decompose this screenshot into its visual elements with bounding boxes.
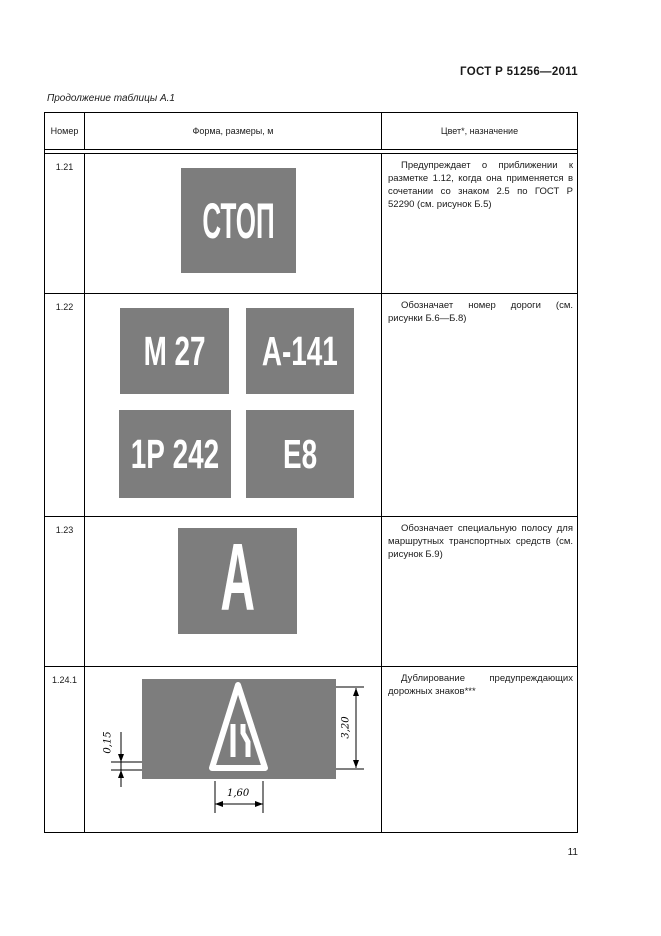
stop-marking-sign: СТОП (181, 168, 296, 273)
row-number: 1.21 (45, 154, 85, 293)
page-number: 11 (568, 847, 578, 858)
row-number: 1.24.1 (45, 667, 85, 832)
arrow-up-icon (353, 688, 359, 696)
route-number-sign-a141: А-141 (246, 308, 354, 394)
column-header-color: Цвет*, назначение (382, 113, 577, 149)
sign-label: М 27 (144, 331, 206, 372)
arrow-up-icon (118, 770, 124, 778)
arrow-down-icon (353, 760, 359, 768)
document-number: ГОСТ Р 51256—2011 (460, 66, 578, 78)
row-number: 1.23 (45, 517, 85, 666)
column-header-shape: Форма, размеры, м (85, 113, 382, 149)
sign-label: Е8 (283, 434, 317, 475)
table-row-1-23: 1.23 А Обозначает специальную полосу для… (45, 517, 577, 667)
dim-label-height: 3,20 (341, 716, 352, 738)
markings-table: Номер Форма, размеры, м Цвет*, назначени… (44, 112, 578, 833)
description-cell: Обозначает номер дороги (см. рисунки Б.6… (382, 294, 577, 516)
sign-label: 1Р 242 (131, 434, 219, 475)
dim-label-width: 1,60 (227, 788, 249, 799)
column-header-number: Номер (45, 113, 85, 149)
road-narrows-sign-drawing (85, 667, 381, 831)
table-caption: Продолжение таблицы А.1 (47, 93, 175, 104)
row-number: 1.22 (45, 294, 85, 516)
route-number-sign-1r242: 1Р 242 (119, 410, 231, 498)
document-page: ГОСТ Р 51256—2011 Продолжение таблицы А.… (0, 0, 661, 936)
table-row-1-22: 1.22 М 27 А-141 1Р 242 Е8 Обозначает ном… (45, 294, 577, 517)
dim-lines-offset (111, 732, 142, 787)
sign-label: А (220, 530, 255, 632)
arrow-left-icon (215, 801, 223, 807)
table-header-row: Номер Форма, размеры, м Цвет*, назначени… (45, 113, 577, 150)
description-text: Предупреждает о приближении к разметке 1… (382, 154, 577, 211)
shape-cell: А (85, 517, 382, 666)
shape-cell: М 27 А-141 1Р 242 Е8 (85, 294, 382, 516)
bus-lane-marking-sign: А (178, 528, 297, 634)
description-text: Обозначает номер дороги (см. рисунки Б.6… (382, 294, 577, 325)
route-number-sign-m27: М 27 (120, 308, 229, 394)
shape-cell: 0,15 3,20 1,60 (85, 667, 382, 832)
table-row-1-24-1: 1.24.1 (45, 667, 577, 832)
description-cell: Предупреждает о приближении к разметке 1… (382, 154, 577, 293)
sign-label: СТОП (202, 196, 274, 246)
description-cell: Дублирование предупреждающих дорожных зн… (382, 667, 577, 832)
sign-label: А-141 (262, 331, 338, 372)
description-text: Обозначает специальную полосу для маршру… (382, 517, 577, 561)
table-row-1-21: 1.21 СТОП Предупреждает о приближении к … (45, 154, 577, 294)
arrow-down-icon (118, 754, 124, 762)
shape-cell: СТОП (85, 154, 382, 293)
route-number-sign-e8: Е8 (246, 410, 354, 498)
dim-label-offset: 0,15 (103, 731, 114, 753)
description-text: Дублирование предупреждающих дорожных зн… (382, 667, 577, 698)
description-cell: Обозначает специальную полосу для маршру… (382, 517, 577, 666)
arrow-right-icon (255, 801, 263, 807)
